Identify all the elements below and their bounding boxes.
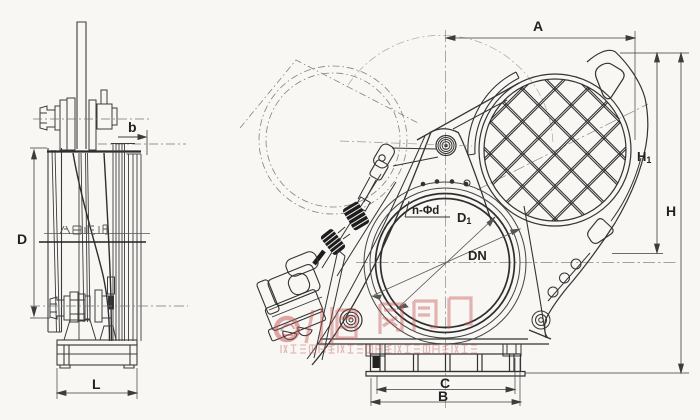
- svg-text:H: H: [666, 203, 676, 219]
- svg-text:b: b: [128, 119, 137, 135]
- svg-text:n-Φd: n-Φd: [412, 205, 439, 217]
- svg-text:A: A: [533, 18, 543, 34]
- svg-text:L: L: [92, 376, 101, 392]
- svg-text:DN: DN: [468, 248, 487, 263]
- svg-text:B: B: [438, 388, 448, 404]
- svg-text:D: D: [17, 231, 27, 247]
